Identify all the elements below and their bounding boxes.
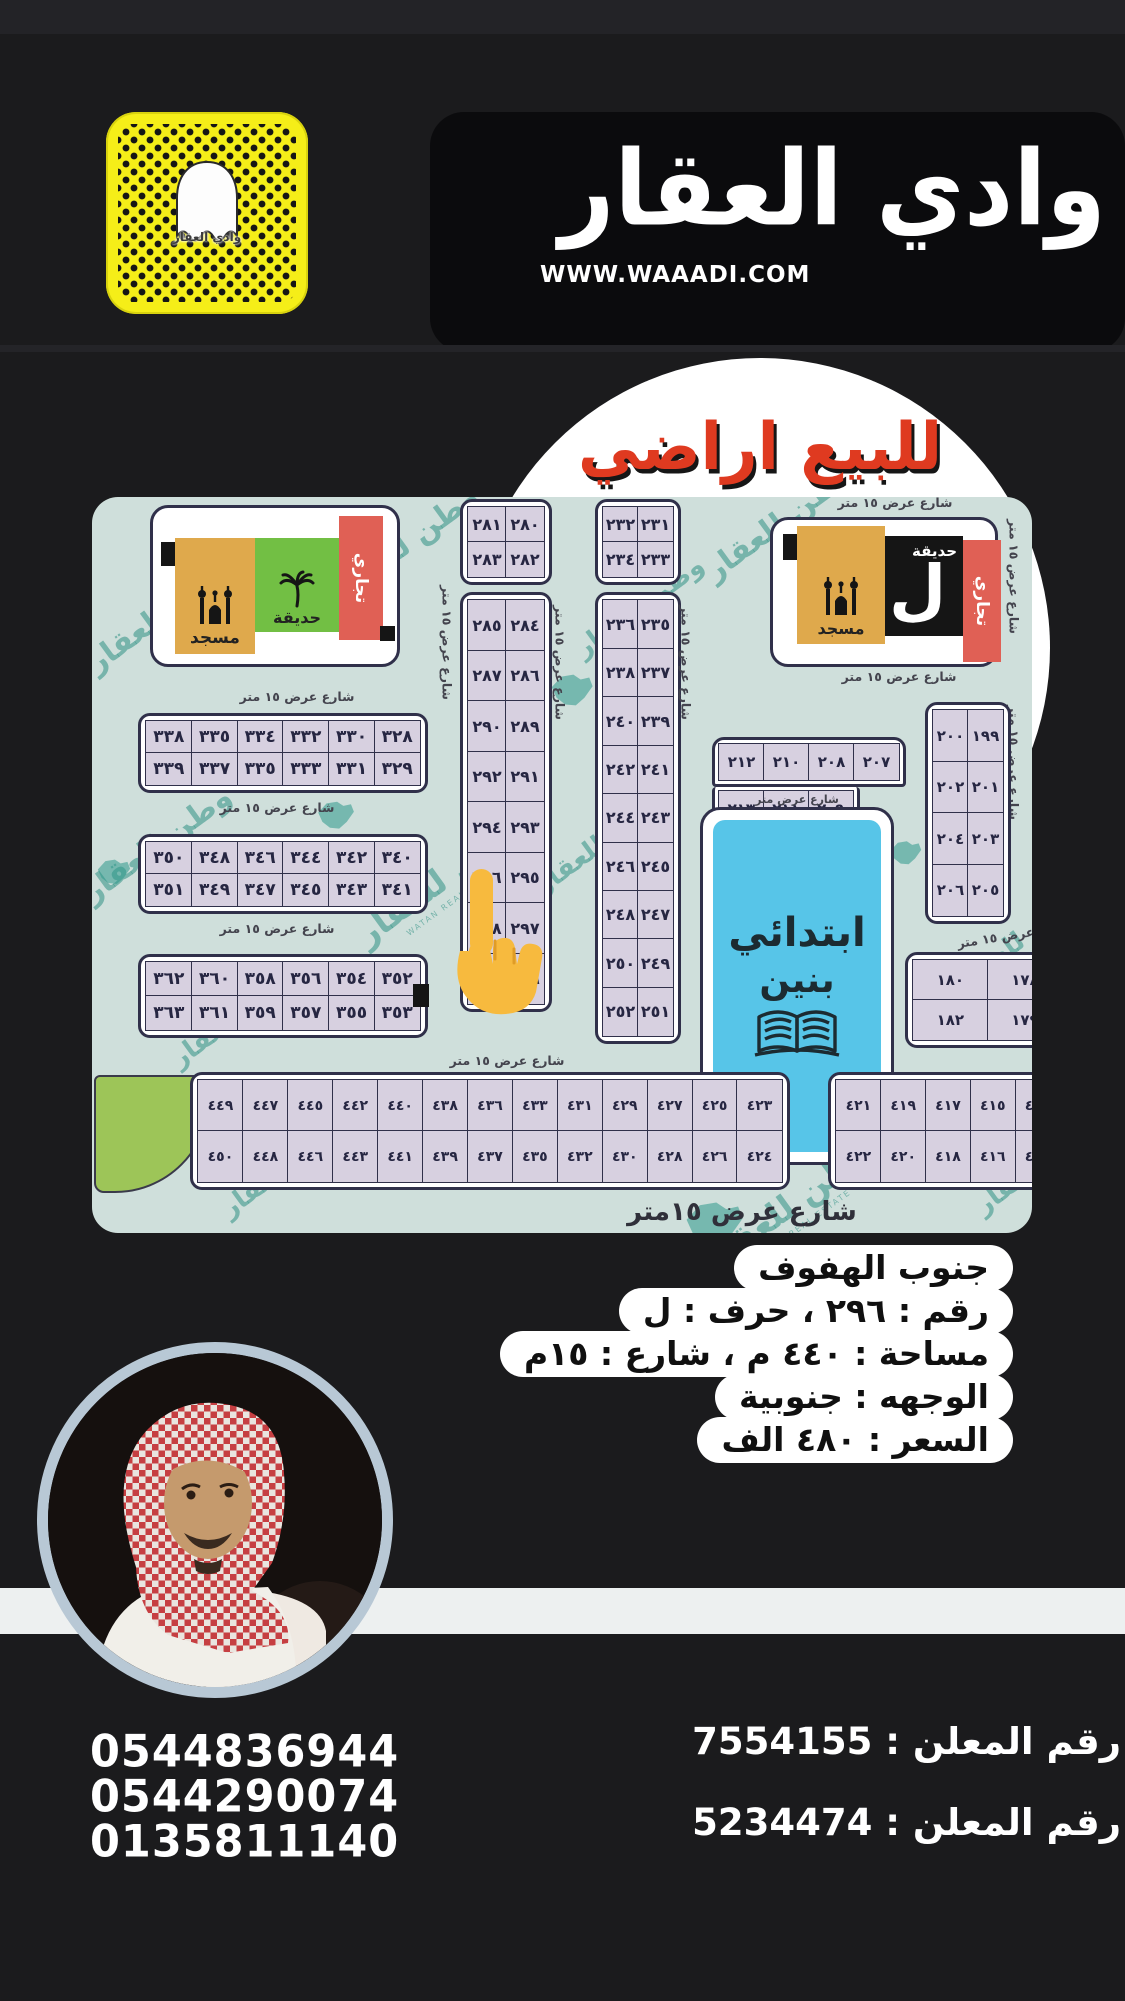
school-label-line1: ابتدائي (728, 910, 865, 956)
plot-cell: ٣٤٥ (282, 873, 329, 906)
plot-cell: ٣٣٣ (282, 752, 329, 785)
plot-cell: ١٩٩ (967, 709, 1003, 762)
plot-row: ٣٣٩٣٣٧٣٣٥٣٣٣٣٣١٣٢٩ (146, 753, 420, 785)
plot-cell: ٣٣٨ (145, 720, 192, 753)
plot-cell: ٤٢٤ (736, 1130, 782, 1182)
letter-plot: حديقة ل (885, 536, 963, 636)
plot-cell: ١٧٨ (987, 959, 1032, 1000)
plot-row: ٤٢١٤١٩٤١٧٤١٥٤١٣ (836, 1080, 1032, 1131)
commercial-label: تجاري (351, 553, 371, 603)
plot-cell: ٢٤٦ (602, 842, 638, 892)
plot-cell: ٣٥١ (145, 873, 192, 906)
detail-line: مساحة : ٤٤٠ م ، شارع : ١٥م (500, 1331, 1013, 1377)
plot-row: ٤٥٠٤٤٨٤٤٦٤٤٣٤٤١٤٣٩٤٣٧٤٣٥٤٣٢٤٣٠٤٢٨٤٢٦٤٢٤ (198, 1131, 782, 1182)
plot-cell: ٢٤٧ (637, 890, 673, 940)
plot-cell: ٢٤١ (637, 745, 673, 795)
advertiser-ids: رقم المعلن : 7554155رقم المعلن : 5234474 (692, 1720, 1121, 1844)
commercial-plot: تجاري (963, 540, 1001, 662)
plot-cell: ٣٥٦ (282, 961, 329, 996)
plot-row: ٢١٢٢١٠٢٠٨٢٠٧ (719, 744, 899, 780)
plot-cell: ٣٥٥ (328, 995, 375, 1030)
plot-row: ٢٤٦٢٤٥ (603, 842, 673, 890)
plot-row: ٢٣٦٢٣٥ (603, 600, 673, 648)
plot-cell: ٢٠٢ (932, 761, 968, 814)
street-label-vertical: شارع عرض ١٥ متر (440, 568, 455, 718)
snapchat-code: وادي العقار (106, 112, 308, 314)
plot-cell: ٤٣٥ (512, 1130, 558, 1182)
plot-cell: ٢٨٤ (505, 599, 544, 651)
plot-cell: ٤٢٩ (602, 1079, 648, 1131)
plot-cell: ١٨٠ (912, 959, 988, 1000)
plot-block-230s: ٢٣٦٢٣٥٢٣٨٢٣٧٢٤٠٢٣٩٢٤٢٢٤١٢٤٤٢٤٣٢٤٦٢٤٥٢٤٨٢… (595, 592, 681, 1044)
plot-cell: ٤١٨ (925, 1130, 971, 1182)
detail-line: رقم : ٢٩٦ ، حرف : ل (619, 1288, 1013, 1334)
plot-row: ٤٤٩٤٤٧٤٤٥٤٤٢٤٤٠٤٣٨٤٣٦٤٣٣٤٣١٤٢٩٤٢٧٤٢٥٤٢٣ (198, 1080, 782, 1131)
plot-cell: ٤٣٩ (422, 1130, 468, 1182)
plot-cell: ٢٨٧ (467, 650, 506, 702)
detail-line: الوجهه : جنوبية (715, 1374, 1013, 1420)
plot-cell: ٢٠٦ (932, 864, 968, 917)
plot-row: ٢٩٠٢٨٩ (468, 701, 544, 752)
plot-cell: ٣٤٧ (237, 873, 284, 906)
plot-cell: ٣٥٩ (237, 995, 284, 1030)
plot-row: ٣٦٢٣٦٠٣٥٨٣٥٦٣٥٤٣٥٢ (146, 962, 420, 996)
plot-row: ٣٥١٣٤٩٣٤٧٣٤٥٣٤٣٣٤١ (146, 874, 420, 906)
plot-cell: ٤٢٧ (647, 1079, 693, 1131)
plot-cell: ٤٢٨ (647, 1130, 693, 1182)
plot-cell: ٤١٦ (970, 1130, 1016, 1182)
plot-cell: ٢٤٢ (602, 745, 638, 795)
plot-cell: ٢٠١ (967, 761, 1003, 814)
palm-icon (275, 568, 319, 608)
plot-row: ٢٠٦٢٠٥ (933, 865, 1003, 917)
plot-block-280s-top: ٢٨١٢٨٠٢٨٣٢٨٢ (460, 499, 552, 585)
plot-cell: ٢٣٣ (637, 541, 673, 577)
plot-cell: ٤٤٠ (377, 1079, 423, 1131)
plot-cell: ٣٦١ (191, 995, 238, 1030)
plot-cell: ٤٤٥ (287, 1079, 333, 1131)
street-label: شارع عرض ١٥ متر (192, 800, 362, 815)
plot-cell: ٢١٠ (763, 743, 809, 780)
plot-cell: ٤٤٣ (332, 1130, 378, 1182)
plot-cell: ٤٢٥ (692, 1079, 738, 1131)
plot-cell: ٢٤٣ (637, 793, 673, 843)
corner-marker (413, 984, 429, 1007)
street-label-vertical: شارع عرض ١٥ متر (1007, 502, 1022, 652)
plot-cell: ٣٣٢ (282, 720, 329, 753)
plot-cell: ٢٣٨ (602, 648, 638, 698)
corner-marker (380, 626, 395, 641)
plot-row: ٣٥٠٣٤٨٣٤٦٣٤٤٣٤٢٣٤٠ (146, 842, 420, 874)
plot-cell: ٣٣١ (328, 752, 375, 785)
plot-cell: ٤١٧ (925, 1079, 971, 1131)
plot-cell: ٢٠٠ (932, 709, 968, 762)
plot-cell: ٢٣٧ (637, 648, 673, 698)
plot-row: ٢٨٣٢٨٢ (468, 542, 544, 577)
brand-website: WWW.WAAADI.COM (540, 262, 775, 288)
plot-row: ٢٠٢٢٠١ (933, 762, 1003, 814)
mosque-icon (194, 584, 236, 628)
background-seam (0, 345, 1125, 352)
plot-block-230s-top: ٢٣٢٢٣١٢٣٤٢٣٣ (595, 499, 681, 585)
plot-row: ٢٤٢٢٤١ (603, 745, 673, 793)
plot-block-178-182: ١٨٠١٧٨١٨٢١٧٩ (905, 952, 1032, 1048)
garden-plot: حديقة (255, 538, 339, 632)
plot-cell: ٤٣١ (557, 1079, 603, 1131)
plot-row: ١٨٠١٧٨ (913, 960, 1032, 1000)
street-label: شارع عرض متر (732, 793, 862, 806)
plot-row: ٢٩٢٢٩١ (468, 752, 544, 803)
plot-cell: ٣٤٣ (328, 873, 375, 906)
flyer: وادي العقار وادي العقار WWW.WAAADI.COM ل… (0, 0, 1125, 2001)
plot-cell: ٤٢٦ (692, 1130, 738, 1182)
plot-row: ٢٨٥٢٨٤ (468, 600, 544, 651)
mosque-label: مسجد (818, 619, 865, 638)
street-label-vertical: شارع عرض ١٥ متر (679, 588, 694, 738)
mosque-plot: مسجد (797, 526, 885, 644)
school-label-line2: بنين (759, 960, 834, 1001)
plot-cell: ٤٤٦ (287, 1130, 333, 1182)
plot-strip-423-450: ٤٤٩٤٤٧٤٤٥٤٤٢٤٤٠٤٣٨٤٣٦٤٣٣٤٣١٤٢٩٤٢٧٤٢٥٤٢٣٤… (190, 1072, 790, 1190)
plot-cell: ٤٣٣ (512, 1079, 558, 1131)
plot-cell: ٤٣٨ (422, 1079, 468, 1131)
plot-cell: ٢٠٤ (932, 812, 968, 865)
plot-cell: ٤٢٢ (835, 1130, 881, 1182)
plot-cell: ٣٣٧ (191, 752, 238, 785)
plot-cell: ٤٤٩ (197, 1079, 243, 1131)
detail-line: جنوب الهفوف (734, 1245, 1013, 1291)
plot-cell: ٢٨٠ (505, 506, 544, 542)
street-label: شارع عرض ١٥ متر (192, 921, 362, 936)
plot-cell: ٢٩١ (505, 751, 544, 803)
plot-cell: ٢٨٩ (505, 700, 544, 752)
detail-line: السعر : ٤٨٠ الف (697, 1417, 1013, 1463)
plot-cell: ٢٠٧ (853, 743, 899, 780)
plot-cell: ٢٩٠ (467, 700, 506, 752)
plot-cell: ٣٤٢ (328, 841, 375, 874)
plot-cell: ٢٣٥ (637, 599, 673, 649)
plot-cell: ٣٣٥ (237, 752, 284, 785)
plot-cell: ٢٣١ (637, 506, 673, 542)
plot-cell: ٤١٣ (1015, 1079, 1032, 1131)
street-label: شارع عرض ١٥ متر (824, 669, 974, 684)
plot-row: ٢٣٤٢٣٣ (603, 542, 673, 577)
ksa-silhouette-blob (94, 855, 132, 890)
top-bar (0, 0, 1125, 34)
plot-cell: ٤١٩ (880, 1079, 926, 1131)
plot-cell: ٢٠٨ (808, 743, 854, 780)
plot-cell: ٢٨٥ (467, 599, 506, 651)
plot-cell: ٤٤٧ (242, 1079, 288, 1131)
plot-cell: ٣٣٠ (328, 720, 375, 753)
listing-details: جنوب الهفوفرقم : ٢٩٦ ، حرف : لمساحة : ٤٤… (0, 1248, 1013, 1463)
mosque-icon (820, 575, 862, 619)
letter-lam: ل (889, 550, 946, 630)
phone-number: 0135811140 (90, 1819, 399, 1866)
mosque-plot: مسجد (175, 538, 255, 654)
plot-cell: ٢٤٠ (602, 696, 638, 746)
facility-block-topright: مسجد حديقة ل تجاري (770, 517, 998, 667)
plot-row: ٢٨١٢٨٠ (468, 507, 544, 542)
sale-banner-title: للبيع اراضي (470, 408, 1050, 485)
plot-cell: ٤١٥ (970, 1079, 1016, 1131)
plot-cell: ٢١٢ (718, 743, 764, 780)
plot-cell: ٣٤٤ (282, 841, 329, 874)
plot-cell: ٢٨٢ (505, 541, 544, 577)
phone-number: 0544290074 (90, 1774, 399, 1821)
plot-cell: ٤٢٠ (880, 1130, 926, 1182)
plot-cell: ٢٥٢ (602, 987, 638, 1037)
plot-cell: ٢٤٤ (602, 793, 638, 843)
plot-block-207-212: ٢١٢٢١٠٢٠٨٢٠٧ (712, 737, 906, 787)
plot-cell: ٤٣٦ (467, 1079, 513, 1131)
plot-block-340-351: ٣٥٠٣٤٨٣٤٦٣٤٤٣٤٢٣٤٠٣٥١٣٤٩٣٤٧٣٤٥٣٤٣٣٤١ (138, 834, 428, 914)
plot-cell: ٣٤١ (374, 873, 421, 906)
plot-row: ٢٤٨٢٤٧ (603, 891, 673, 939)
plot-strip-413-422: ٤٢١٤١٩٤١٧٤١٥٤١٣٤٢٢٤٢٠٤١٨٤١٦٤١٤ (828, 1072, 1032, 1190)
street-label-big: شارع عرض ١٥متر (612, 1197, 872, 1227)
plot-block-199-206: ٢٠٠١٩٩٢٠٢٢٠١٢٠٤٢٠٣٢٠٦٢٠٥ (925, 702, 1011, 924)
phone-list: 054483694405442900740135811140 (90, 1730, 399, 1865)
street-label-vertical: شارع عرض ١٥ متر (553, 588, 568, 738)
plot-cell: ٤٢٣ (736, 1079, 782, 1131)
plot-cell: ٣٤٠ (374, 841, 421, 874)
plot-cell: ٢٨٦ (505, 650, 544, 702)
plot-cell: ٤٢١ (835, 1079, 881, 1131)
plot-cell: ٢٠٥ (967, 864, 1003, 917)
plot-row: ٤٢٢٤٢٠٤١٨٤١٦٤١٤ (836, 1131, 1032, 1182)
plot-cell: ٢٣٦ (602, 599, 638, 649)
plat-map: وطن للعقار وطن للعقار وطن للعقار وطن للع… (92, 497, 1032, 1233)
plot-cell: ٤٤١ (377, 1130, 423, 1182)
plot-cell: ٣٦٠ (191, 961, 238, 996)
corner-marker (161, 542, 176, 566)
plot-cell: ٣٣٤ (237, 720, 284, 753)
street-label: شارع عرض ١٥ متر (212, 689, 382, 704)
plot-cell: ٤٤٨ (242, 1130, 288, 1182)
plot-cell: ٤٤٢ (332, 1079, 378, 1131)
plot-row: ٢٥٠٢٤٩ (603, 939, 673, 987)
facility-block-topleft: مسجد حديقة تجاري (150, 505, 400, 667)
plot-cell: ٣٤٨ (191, 841, 238, 874)
plot-cell: ٣٥٠ (145, 841, 192, 874)
plot-cell: ٣٤٦ (237, 841, 284, 874)
plot-cell: ٢٩٤ (467, 801, 506, 853)
plot-cell: ٤٣٢ (557, 1130, 603, 1182)
plot-cell: ٢٩٢ (467, 751, 506, 803)
snapcode-brand-label: وادي العقار (106, 230, 308, 244)
plot-cell: ٢٥٠ (602, 938, 638, 988)
plot-cell: ١٨٢ (912, 999, 988, 1040)
plot-cell: ٣٦٣ (145, 995, 192, 1030)
open-book-icon (751, 1005, 843, 1063)
plot-row: ٢٩٤٢٩٣ (468, 802, 544, 853)
plot-cell: ٣٣٥ (191, 720, 238, 753)
plot-cell: ٣٥٨ (237, 961, 284, 996)
plot-row: ١٨٢١٧٩ (913, 1000, 1032, 1040)
plot-cell: ١٧٩ (987, 999, 1032, 1040)
street-label: شارع عرض ١٥ متر (820, 497, 970, 510)
plot-cell: ٢٣٩ (637, 696, 673, 746)
advertiser-id: رقم المعلن : 7554155 (692, 1720, 1121, 1763)
plot-cell: ٤٣٧ (467, 1130, 513, 1182)
plot-cell: ٣٢٨ (374, 720, 421, 753)
mosque-label: مسجد (190, 628, 240, 648)
plot-row: ٢٥٢٢٥١ (603, 988, 673, 1036)
advertiser-id: رقم المعلن : 5234474 (692, 1801, 1121, 1844)
brand-title: وادي العقار (545, 117, 1120, 263)
plot-row: ٢٣٢٢٣١ (603, 507, 673, 542)
plot-row: ٢٨٧٢٨٦ (468, 651, 544, 702)
plot-cell: ٢٥١ (637, 987, 673, 1037)
plot-row: ٢٣٨٢٣٧ (603, 648, 673, 696)
plot-cell: ٢٠٣ (967, 812, 1003, 865)
plot-cell: ٢٨١ (467, 506, 506, 542)
plot-cell: ٣٢٩ (374, 752, 421, 785)
plot-cell: ٢٤٨ (602, 890, 638, 940)
commercial-plot: تجاري (339, 516, 383, 640)
plot-cell: ٣٥٧ (282, 995, 329, 1030)
plot-cell: ٣٣٩ (145, 752, 192, 785)
plot-block-352-363: ٣٦٢٣٦٠٣٥٨٣٥٦٣٥٤٣٥٢٣٦٣٣٦١٣٥٩٣٥٧٣٥٥٣٥٣ (138, 954, 428, 1038)
plot-cell: ٢٤٥ (637, 842, 673, 892)
plot-cell: ٤١٤ (1015, 1130, 1032, 1182)
plot-row: ٣٣٨٣٣٥٣٣٤٣٣٢٣٣٠٣٢٨ (146, 721, 420, 753)
commercial-label: تجاري (972, 576, 992, 626)
plot-cell: ٢٩٣ (505, 801, 544, 853)
snap-ghost-icon (147, 148, 267, 268)
garden-label: حديقة (273, 608, 321, 627)
plot-cell: ٢٨٣ (467, 541, 506, 577)
plot-row: ٢٠٤٢٠٣ (933, 813, 1003, 865)
plot-row: ٢٤٤٢٤٣ (603, 794, 673, 842)
phone-number: 0544836944 (90, 1729, 399, 1776)
plot-cell: ٣٥٤ (328, 961, 375, 996)
plot-block-328-339: ٣٣٨٣٣٥٣٣٤٣٣٢٣٣٠٣٢٨٣٣٩٣٣٧٣٣٥٣٣٣٣٣١٣٢٩ (138, 713, 428, 793)
plot-cell: ٤٥٠ (197, 1130, 243, 1182)
plot-row: ٣٦٣٣٦١٣٥٩٣٥٧٣٥٥٣٥٣ (146, 996, 420, 1030)
plot-row: ٢٠٠١٩٩ (933, 710, 1003, 762)
plot-cell: ٣٤٩ (191, 873, 238, 906)
plot-cell: ٢٣٤ (602, 541, 638, 577)
plot-cell: ٢٤٩ (637, 938, 673, 988)
street-label: شارع عرض ١٥ متر (422, 1053, 592, 1068)
plot-cell: ٢٣٢ (602, 506, 638, 542)
pointing-finger-emoji (448, 867, 548, 1032)
plot-cell: ٣٦٢ (145, 961, 192, 996)
plot-cell: ٤٣٠ (602, 1130, 648, 1182)
plot-row: ٢٤٠٢٣٩ (603, 697, 673, 745)
